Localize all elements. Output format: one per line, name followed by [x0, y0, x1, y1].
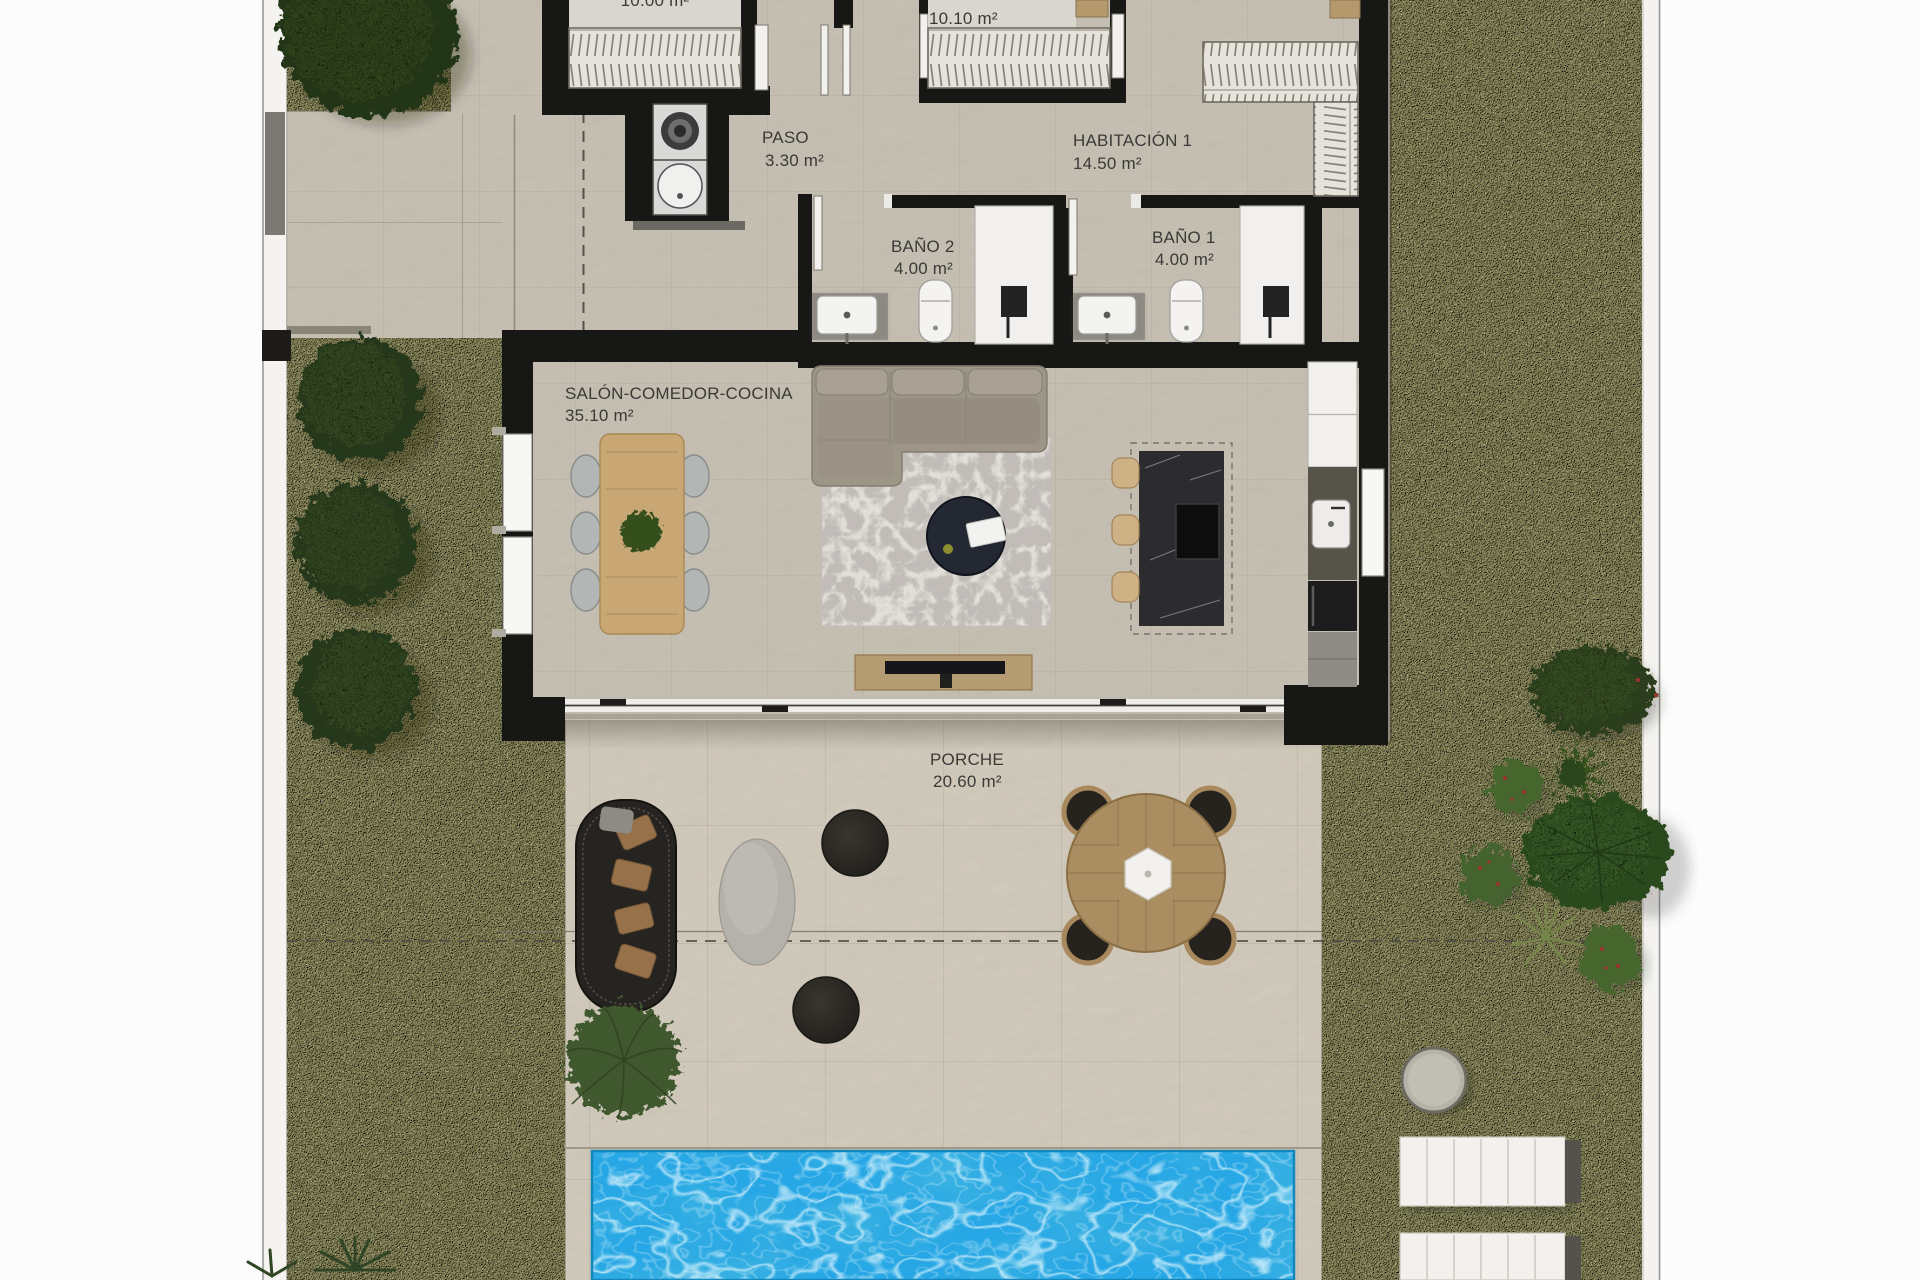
svg-text:10.10 m²: 10.10 m² [929, 9, 998, 28]
svg-text:3.30 m²: 3.30 m² [765, 151, 824, 170]
svg-text:10.00 m²: 10.00 m² [621, 0, 690, 10]
svg-text:SALÓN-COMEDOR-COCINA: SALÓN-COMEDOR-COCINA [565, 384, 793, 403]
svg-text:14.50 m²: 14.50 m² [1073, 154, 1142, 173]
svg-text:BAÑO 1: BAÑO 1 [1152, 228, 1216, 247]
svg-text:BAÑO 2: BAÑO 2 [891, 237, 955, 256]
svg-text:HABITACIÓN 1: HABITACIÓN 1 [1073, 131, 1192, 150]
svg-text:4.00 m²: 4.00 m² [1155, 250, 1214, 269]
svg-text:35.10 m²: 35.10 m² [565, 406, 634, 425]
svg-text:PORCHE: PORCHE [930, 750, 1004, 769]
svg-text:20.60 m²: 20.60 m² [933, 772, 1002, 791]
svg-text:4.00 m²: 4.00 m² [894, 259, 953, 278]
svg-text:PASO: PASO [762, 128, 809, 147]
